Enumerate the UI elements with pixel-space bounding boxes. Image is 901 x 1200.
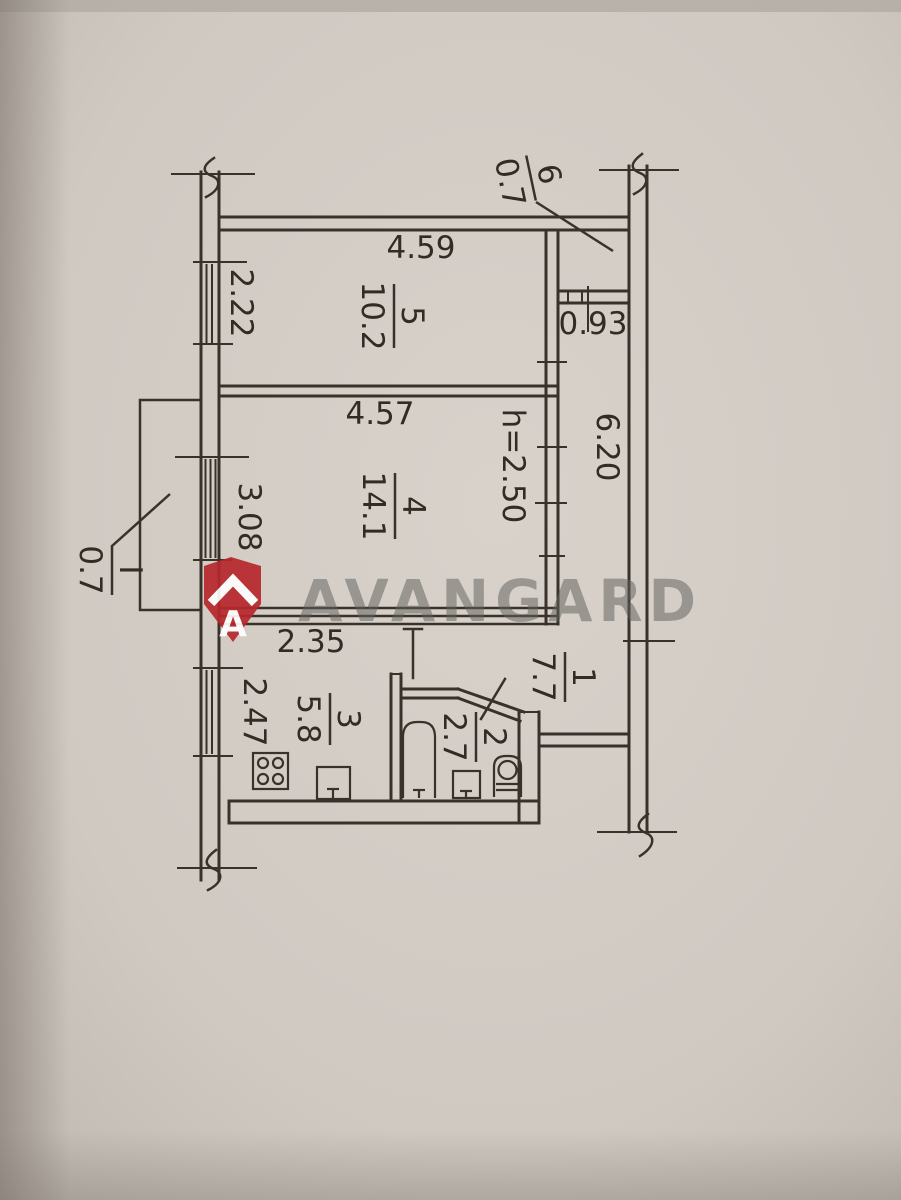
room2-area: 2.7 xyxy=(436,712,472,761)
logo-letter: A xyxy=(219,604,247,645)
dim-room5-width: 4.59 xyxy=(386,230,455,266)
balcony-area: 0.7 xyxy=(72,545,108,594)
balcony-number: I xyxy=(112,565,148,574)
room1-area: 7.7 xyxy=(525,652,561,701)
avangard-watermark-text: AVANGARD xyxy=(298,567,702,635)
dim-room4-window: 3.08 xyxy=(231,482,267,551)
room5-number: 5 xyxy=(394,306,430,326)
room3-number: 3 xyxy=(330,709,366,729)
floor-plan: 4.59 0.93 4.57 2.35 2.22 3.08 2.47 6.20 … xyxy=(0,0,901,1200)
dim-kitchen-window: 2.47 xyxy=(236,677,272,746)
dim-hall-length: 6.20 xyxy=(589,412,625,481)
room4-area: 14.1 xyxy=(355,471,391,540)
room4-number: 4 xyxy=(395,496,431,516)
room2-number: 2 xyxy=(476,727,512,747)
room5-area: 10.2 xyxy=(354,281,390,350)
dim-closet-width: 0.93 xyxy=(558,306,627,342)
dim-room4-width: 4.57 xyxy=(345,396,414,432)
dim-ceiling-height: h=2.50 xyxy=(495,409,531,524)
scanned-floor-plan-page: 4.59 0.93 4.57 2.35 2.22 3.08 2.47 6.20 … xyxy=(0,0,901,1200)
room3-area: 5.8 xyxy=(290,694,326,743)
room1-number: 1 xyxy=(565,667,601,687)
dim-room5-window: 2.22 xyxy=(223,268,259,337)
